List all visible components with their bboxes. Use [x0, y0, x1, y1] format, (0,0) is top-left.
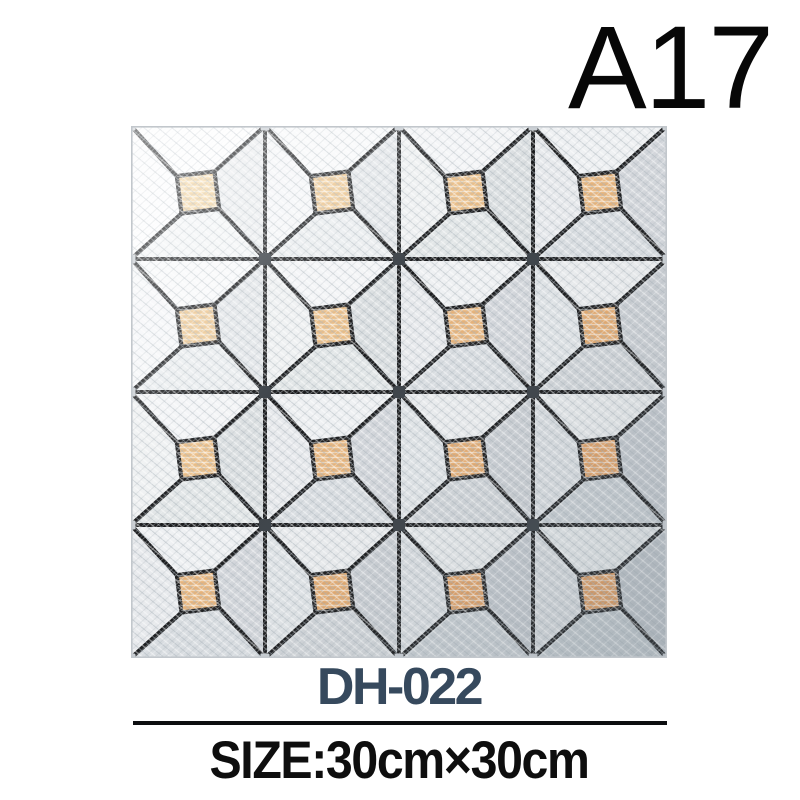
product-card: A17 DH-022 SIZE:30cm×30cm — [0, 0, 800, 800]
divider-line — [133, 721, 667, 725]
size-label: SIZE:30cm×30cm — [155, 734, 643, 787]
mosaic-tile-graphic — [131, 126, 667, 658]
tile-product-image — [131, 126, 667, 658]
model-number-label: DH-022 — [131, 661, 667, 713]
product-code-label: A17 — [568, 9, 772, 127]
